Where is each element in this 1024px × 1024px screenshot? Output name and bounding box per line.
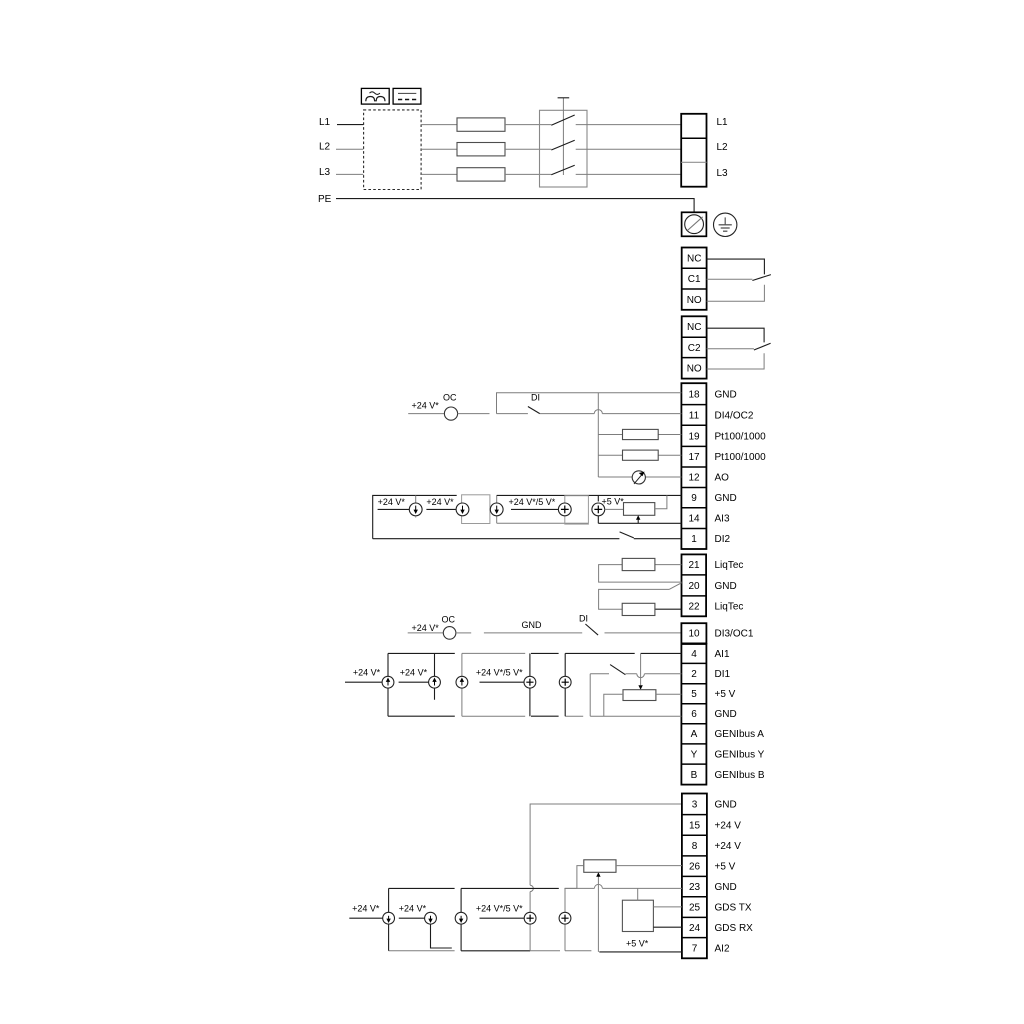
svg-text:GND: GND bbox=[715, 800, 737, 811]
svg-text:+24 V*: +24 V* bbox=[353, 667, 381, 677]
svg-text:A: A bbox=[691, 729, 698, 740]
svg-text:24: 24 bbox=[689, 923, 701, 934]
svg-text:+24 V: +24 V bbox=[715, 841, 742, 852]
svg-text:L2: L2 bbox=[319, 142, 331, 153]
svg-text:GND: GND bbox=[715, 389, 737, 400]
svg-text:22: 22 bbox=[688, 602, 700, 613]
svg-text:18: 18 bbox=[688, 389, 700, 400]
svg-text:AO: AO bbox=[715, 473, 730, 484]
svg-text:L3: L3 bbox=[319, 167, 331, 178]
svg-text:+5 V*: +5 V* bbox=[626, 939, 649, 949]
svg-text:3: 3 bbox=[692, 800, 698, 811]
svg-text:23: 23 bbox=[689, 882, 701, 893]
svg-text:Y: Y bbox=[691, 749, 698, 760]
svg-text:GENIbus Y: GENIbus Y bbox=[715, 749, 765, 760]
svg-text:OC: OC bbox=[443, 393, 457, 403]
svg-text:Pt100/1000: Pt100/1000 bbox=[715, 452, 767, 463]
svg-text:GND: GND bbox=[715, 882, 737, 893]
svg-text:11: 11 bbox=[689, 410, 700, 421]
svg-text:20: 20 bbox=[688, 581, 700, 592]
svg-text:26: 26 bbox=[689, 862, 701, 873]
svg-text:12: 12 bbox=[688, 473, 700, 484]
svg-text:25: 25 bbox=[689, 903, 701, 914]
svg-text:10: 10 bbox=[688, 629, 700, 640]
svg-text:+24 V*/5 V*: +24 V*/5 V* bbox=[509, 497, 556, 507]
svg-text:+24 V*: +24 V* bbox=[352, 904, 380, 914]
svg-text:AI3: AI3 bbox=[715, 514, 730, 525]
svg-text:DI4/OC2: DI4/OC2 bbox=[715, 410, 754, 421]
svg-text:GDS RX: GDS RX bbox=[715, 923, 754, 934]
svg-text:19: 19 bbox=[688, 431, 700, 442]
svg-text:17: 17 bbox=[688, 452, 700, 463]
svg-text:GENIbus A: GENIbus A bbox=[715, 729, 765, 740]
svg-text:DI3/OC1: DI3/OC1 bbox=[715, 629, 754, 640]
svg-text:1: 1 bbox=[691, 534, 697, 545]
svg-text:+24 V: +24 V bbox=[715, 820, 742, 831]
svg-text:L1: L1 bbox=[717, 117, 729, 128]
svg-text:+24 V*: +24 V* bbox=[412, 623, 440, 633]
svg-text:GND: GND bbox=[522, 620, 543, 630]
svg-text:AI2: AI2 bbox=[715, 943, 730, 954]
svg-text:4: 4 bbox=[691, 649, 697, 660]
svg-text:+24 V*: +24 V* bbox=[378, 497, 406, 507]
svg-text:NC: NC bbox=[687, 253, 701, 264]
svg-text:+5 V: +5 V bbox=[715, 689, 736, 700]
svg-text:+5 V: +5 V bbox=[715, 862, 736, 873]
svg-text:AI1: AI1 bbox=[715, 649, 730, 660]
svg-text:DI: DI bbox=[531, 393, 540, 403]
svg-text:LiqTec: LiqTec bbox=[715, 602, 744, 613]
svg-text:+24 V*: +24 V* bbox=[412, 400, 440, 410]
svg-text:GND: GND bbox=[715, 581, 737, 592]
svg-text:7: 7 bbox=[692, 943, 698, 954]
svg-text:L1: L1 bbox=[319, 117, 331, 128]
svg-text:9: 9 bbox=[691, 493, 697, 504]
svg-text:15: 15 bbox=[689, 820, 701, 831]
svg-text:21: 21 bbox=[688, 560, 700, 571]
svg-text:+24 V*/5 V*: +24 V*/5 V* bbox=[476, 904, 523, 914]
svg-text:C2: C2 bbox=[688, 343, 701, 354]
svg-text:14: 14 bbox=[688, 514, 700, 525]
svg-text:L2: L2 bbox=[717, 142, 729, 153]
svg-text:GND: GND bbox=[715, 493, 737, 504]
svg-text:+24 V*/5 V*: +24 V*/5 V* bbox=[476, 667, 523, 677]
svg-text:8: 8 bbox=[692, 841, 698, 852]
svg-text:+5 V*: +5 V* bbox=[602, 497, 625, 507]
svg-text:C1: C1 bbox=[688, 274, 701, 285]
svg-text:DI: DI bbox=[579, 614, 588, 624]
svg-text:Pt100/1000: Pt100/1000 bbox=[715, 431, 767, 442]
svg-text:OC: OC bbox=[442, 615, 456, 625]
svg-text:DI2: DI2 bbox=[715, 534, 731, 545]
svg-text:+24 V*: +24 V* bbox=[400, 667, 428, 677]
svg-text:PE: PE bbox=[318, 194, 332, 205]
svg-text:NO: NO bbox=[687, 364, 702, 375]
svg-text:5: 5 bbox=[691, 689, 697, 700]
svg-text:L3: L3 bbox=[717, 168, 729, 179]
svg-text:NO: NO bbox=[687, 295, 702, 306]
svg-text:DI1: DI1 bbox=[715, 669, 731, 680]
svg-text:6: 6 bbox=[691, 709, 697, 720]
svg-text:GDS TX: GDS TX bbox=[715, 903, 752, 914]
svg-text:+24 V*: +24 V* bbox=[426, 497, 454, 507]
svg-text:B: B bbox=[691, 770, 698, 781]
svg-text:GENIbus B: GENIbus B bbox=[715, 770, 765, 781]
svg-text:GND: GND bbox=[715, 709, 737, 720]
svg-text:NC: NC bbox=[687, 322, 701, 333]
svg-text:2: 2 bbox=[691, 669, 697, 680]
svg-text:+24 V*: +24 V* bbox=[399, 904, 427, 914]
svg-text:LiqTec: LiqTec bbox=[715, 560, 744, 571]
